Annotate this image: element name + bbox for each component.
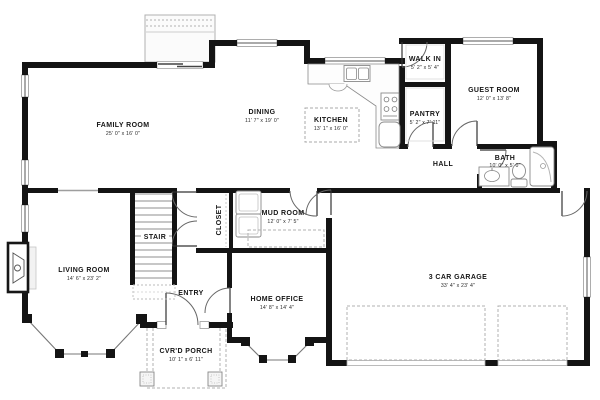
- porch-posts: [140, 372, 222, 386]
- svg-text:DINING: DINING: [249, 109, 276, 116]
- room-label-walk-in: WALK IN5' 2" x 5' 4": [409, 56, 441, 71]
- bathroom-vanity: [479, 167, 509, 186]
- room-label-stair: STAIR: [144, 234, 166, 241]
- room-label-pantry: PANTRY5' 2" x 7' 11": [410, 111, 441, 126]
- garage-door-openings: [347, 361, 567, 366]
- counter-curve: [329, 84, 347, 91]
- svg-text:MUD ROOM: MUD ROOM: [262, 210, 305, 217]
- garage-entry-door: [306, 190, 331, 215]
- svg-text:11' 7" x 19' 0": 11' 7" x 19' 0": [245, 118, 279, 124]
- svg-text:HALL: HALL: [433, 161, 454, 168]
- room-label-family-room: FAMILY ROOM25' 0" x 16' 0": [96, 122, 149, 137]
- svg-text:CVR'D PORCH: CVR'D PORCH: [159, 348, 212, 355]
- svg-text:12' 0" x 7' 5": 12' 0" x 7' 5": [267, 219, 298, 225]
- room-label-closet: CLOSET: [216, 204, 223, 235]
- svg-text:FAMILY ROOM: FAMILY ROOM: [96, 122, 149, 129]
- room-label-guest-room: GUEST ROOM12' 0" x 13' 8": [468, 87, 520, 102]
- room-label-home-office: HOME OFFICE14' 8" x 14' 4": [250, 296, 303, 311]
- svg-text:25' 0" x 16' 0": 25' 0" x 16' 0": [106, 131, 140, 137]
- svg-text:33' 4" x 23' 4": 33' 4" x 23' 4": [441, 283, 475, 289]
- svg-text:10' 1" x 6' 11": 10' 1" x 6' 11": [169, 357, 203, 363]
- corner-shower: [530, 147, 554, 186]
- room-label-garage: 3 CAR GARAGE33' 4" x 23' 4": [429, 274, 487, 289]
- svg-text:WALK IN: WALK IN: [409, 56, 441, 63]
- room-label-hall: HALL: [433, 161, 454, 168]
- room-label-mud-room: MUD ROOM12' 0" x 7' 5": [262, 210, 305, 225]
- svg-text:12' 0" x 13' 8": 12' 0" x 13' 8": [477, 96, 511, 102]
- svg-text:PANTRY: PANTRY: [410, 111, 440, 118]
- kitchen-island: [305, 108, 359, 142]
- svg-text:3 CAR GARAGE: 3 CAR GARAGE: [429, 274, 487, 281]
- garage-stalls: [347, 306, 567, 360]
- svg-text:CLOSET: CLOSET: [216, 204, 223, 235]
- room-label-living-room: LIVING ROOM14' 6" x 23' 2": [58, 267, 109, 282]
- home-office-door: [205, 288, 230, 313]
- svg-text:5' 2" x 5' 4": 5' 2" x 5' 4": [411, 65, 439, 71]
- svg-text:HOME OFFICE: HOME OFFICE: [250, 296, 303, 303]
- svg-text:14' 6" x 23' 2": 14' 6" x 23' 2": [67, 276, 101, 282]
- garage-back-door: [562, 191, 587, 216]
- fireplace: [8, 243, 36, 292]
- floor-plan: FAMILY ROOM25' 0" x 16' 0" DINING11' 7" …: [0, 0, 600, 400]
- room-label-dining: DINING11' 7" x 19' 0": [245, 109, 279, 124]
- bay-windows: [22, 314, 314, 363]
- guest-room-door: [452, 121, 477, 146]
- kitchen-fixtures: [305, 64, 400, 148]
- svg-text:BATH: BATH: [495, 155, 516, 162]
- svg-text:KITCHEN: KITCHEN: [314, 117, 348, 124]
- refrigerator: [379, 122, 400, 147]
- back-stoop: [145, 15, 215, 62]
- svg-text:GUEST ROOM: GUEST ROOM: [468, 87, 520, 94]
- room-label-entry: ENTRY: [178, 290, 203, 297]
- room-label-bath: BATH10' 0" x 5' 0": [489, 155, 520, 169]
- range-stove: [381, 93, 399, 120]
- room-label-porch: CVR'D PORCH10' 1" x 6' 11": [159, 348, 212, 363]
- svg-text:STAIR: STAIR: [144, 234, 166, 241]
- svg-text:LIVING ROOM: LIVING ROOM: [58, 267, 109, 274]
- svg-text:14' 8" x 14' 4": 14' 8" x 14' 4": [260, 305, 294, 311]
- svg-text:10' 0" x 5' 0": 10' 0" x 5' 0": [489, 163, 520, 169]
- living-room-bay-window: [22, 314, 147, 358]
- svg-text:13' 1" x 16' 0": 13' 1" x 16' 0": [314, 126, 348, 132]
- home-office-bay-window: [241, 337, 314, 363]
- sliding-door: [157, 62, 203, 69]
- svg-text:5' 2" x 7' 11": 5' 2" x 7' 11": [410, 120, 441, 126]
- svg-text:ENTRY: ENTRY: [178, 290, 203, 297]
- front-door: [166, 293, 198, 325]
- stair-treads: [133, 193, 175, 299]
- kitchen-sink: [344, 66, 370, 82]
- room-labels: FAMILY ROOM25' 0" x 16' 0" DINING11' 7" …: [58, 56, 520, 363]
